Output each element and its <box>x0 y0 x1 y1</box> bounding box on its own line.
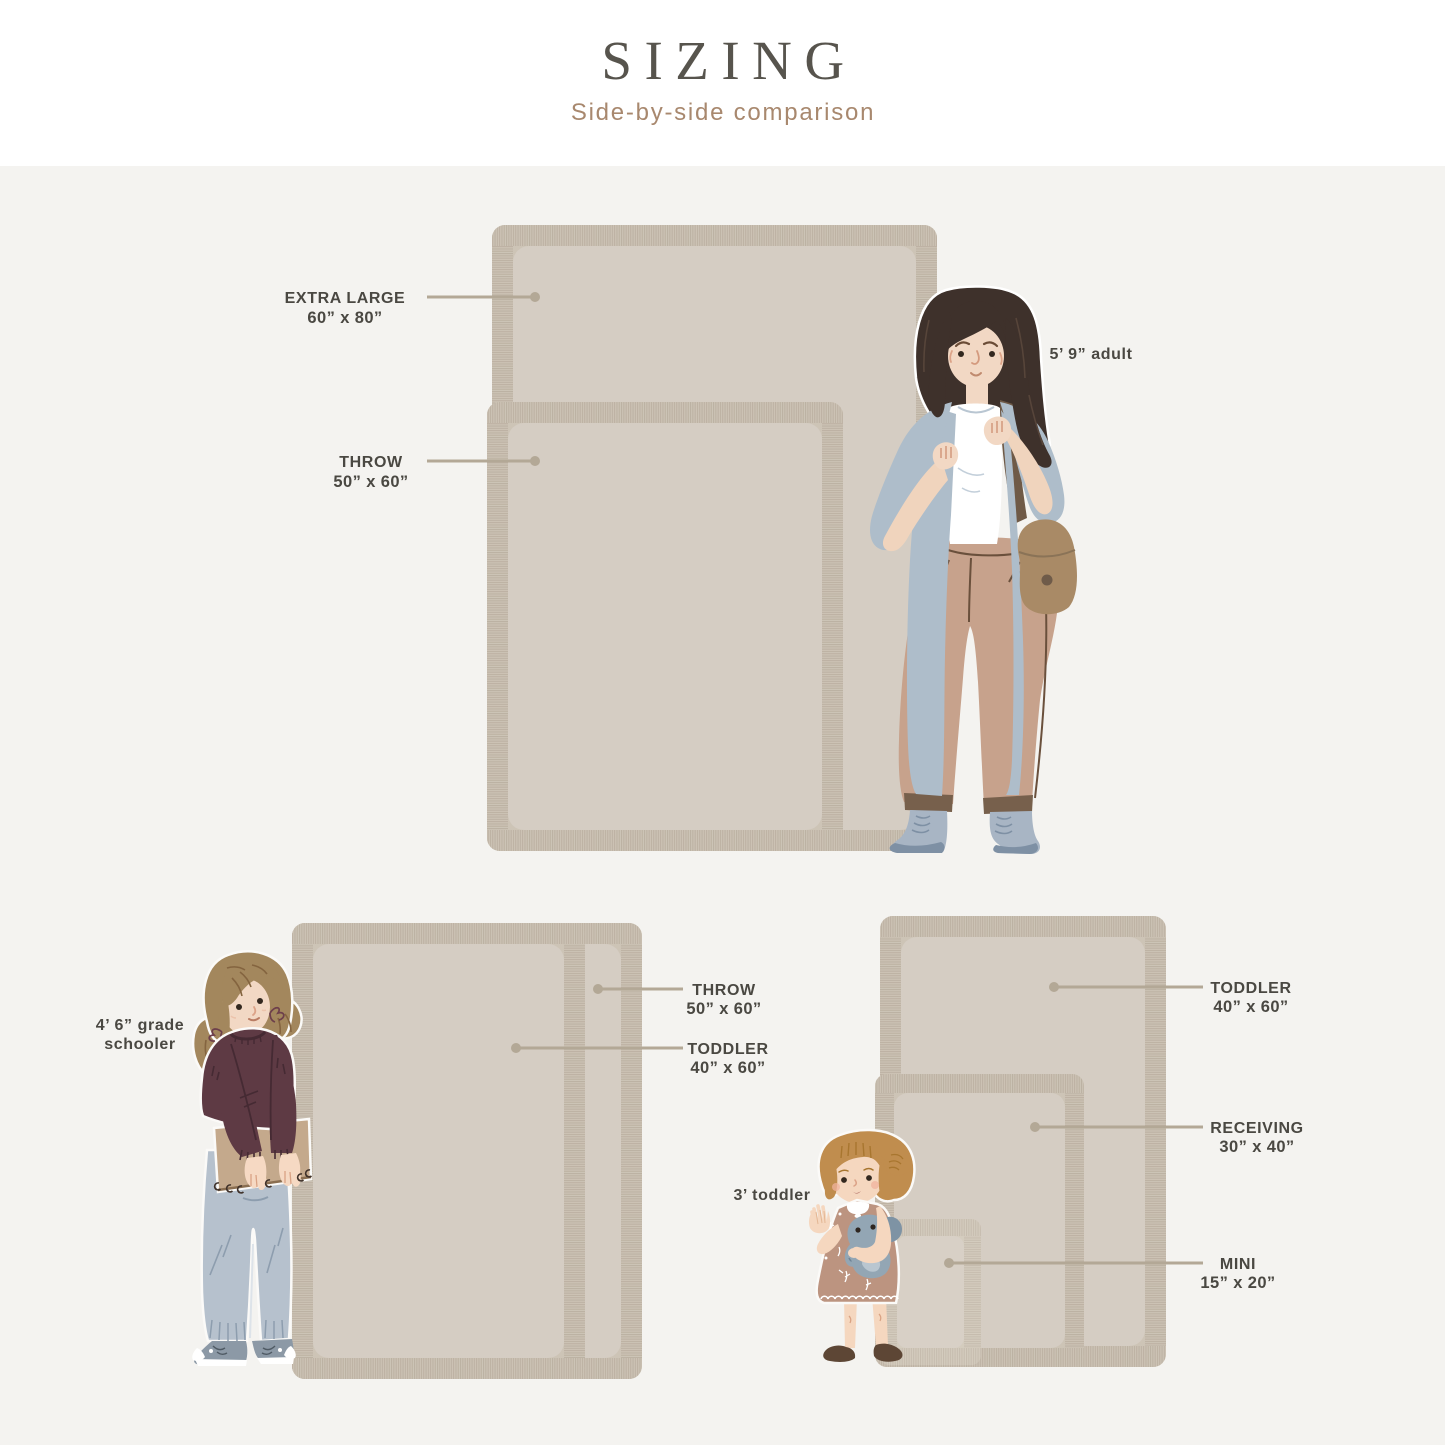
svg-text:THROW: THROW <box>692 982 756 999</box>
svg-text:50” x 60”: 50” x 60” <box>686 1000 761 1018</box>
svg-text:5’ 9” adult: 5’ 9” adult <box>1049 346 1132 363</box>
svg-text:THROW: THROW <box>339 454 403 471</box>
svg-text:Side-by-side comparison: Side-by-side comparison <box>571 99 875 126</box>
svg-text:TODDLER: TODDLER <box>1210 980 1291 997</box>
svg-text:15” x 20”: 15” x 20” <box>1200 1274 1275 1292</box>
svg-text:MINI: MINI <box>1220 1256 1256 1273</box>
svg-text:30” x 40”: 30” x 40” <box>1219 1138 1294 1156</box>
svg-text:schooler: schooler <box>104 1036 176 1053</box>
svg-text:40” x 60”: 40” x 60” <box>690 1059 765 1077</box>
svg-text:RECEIVING: RECEIVING <box>1210 1120 1303 1137</box>
svg-text:50” x 60”: 50” x 60” <box>333 473 408 491</box>
svg-text:40” x 60”: 40” x 60” <box>1213 998 1288 1016</box>
svg-text:3’ toddler: 3’ toddler <box>733 1187 810 1204</box>
svg-text:60” x 80”: 60” x 80” <box>307 309 382 327</box>
svg-text:4’ 6” grade: 4’ 6” grade <box>96 1017 184 1034</box>
svg-text:SIZING: SIZING <box>601 30 856 91</box>
svg-text:EXTRA LARGE: EXTRA LARGE <box>285 290 406 307</box>
svg-text:TODDLER: TODDLER <box>687 1041 768 1058</box>
